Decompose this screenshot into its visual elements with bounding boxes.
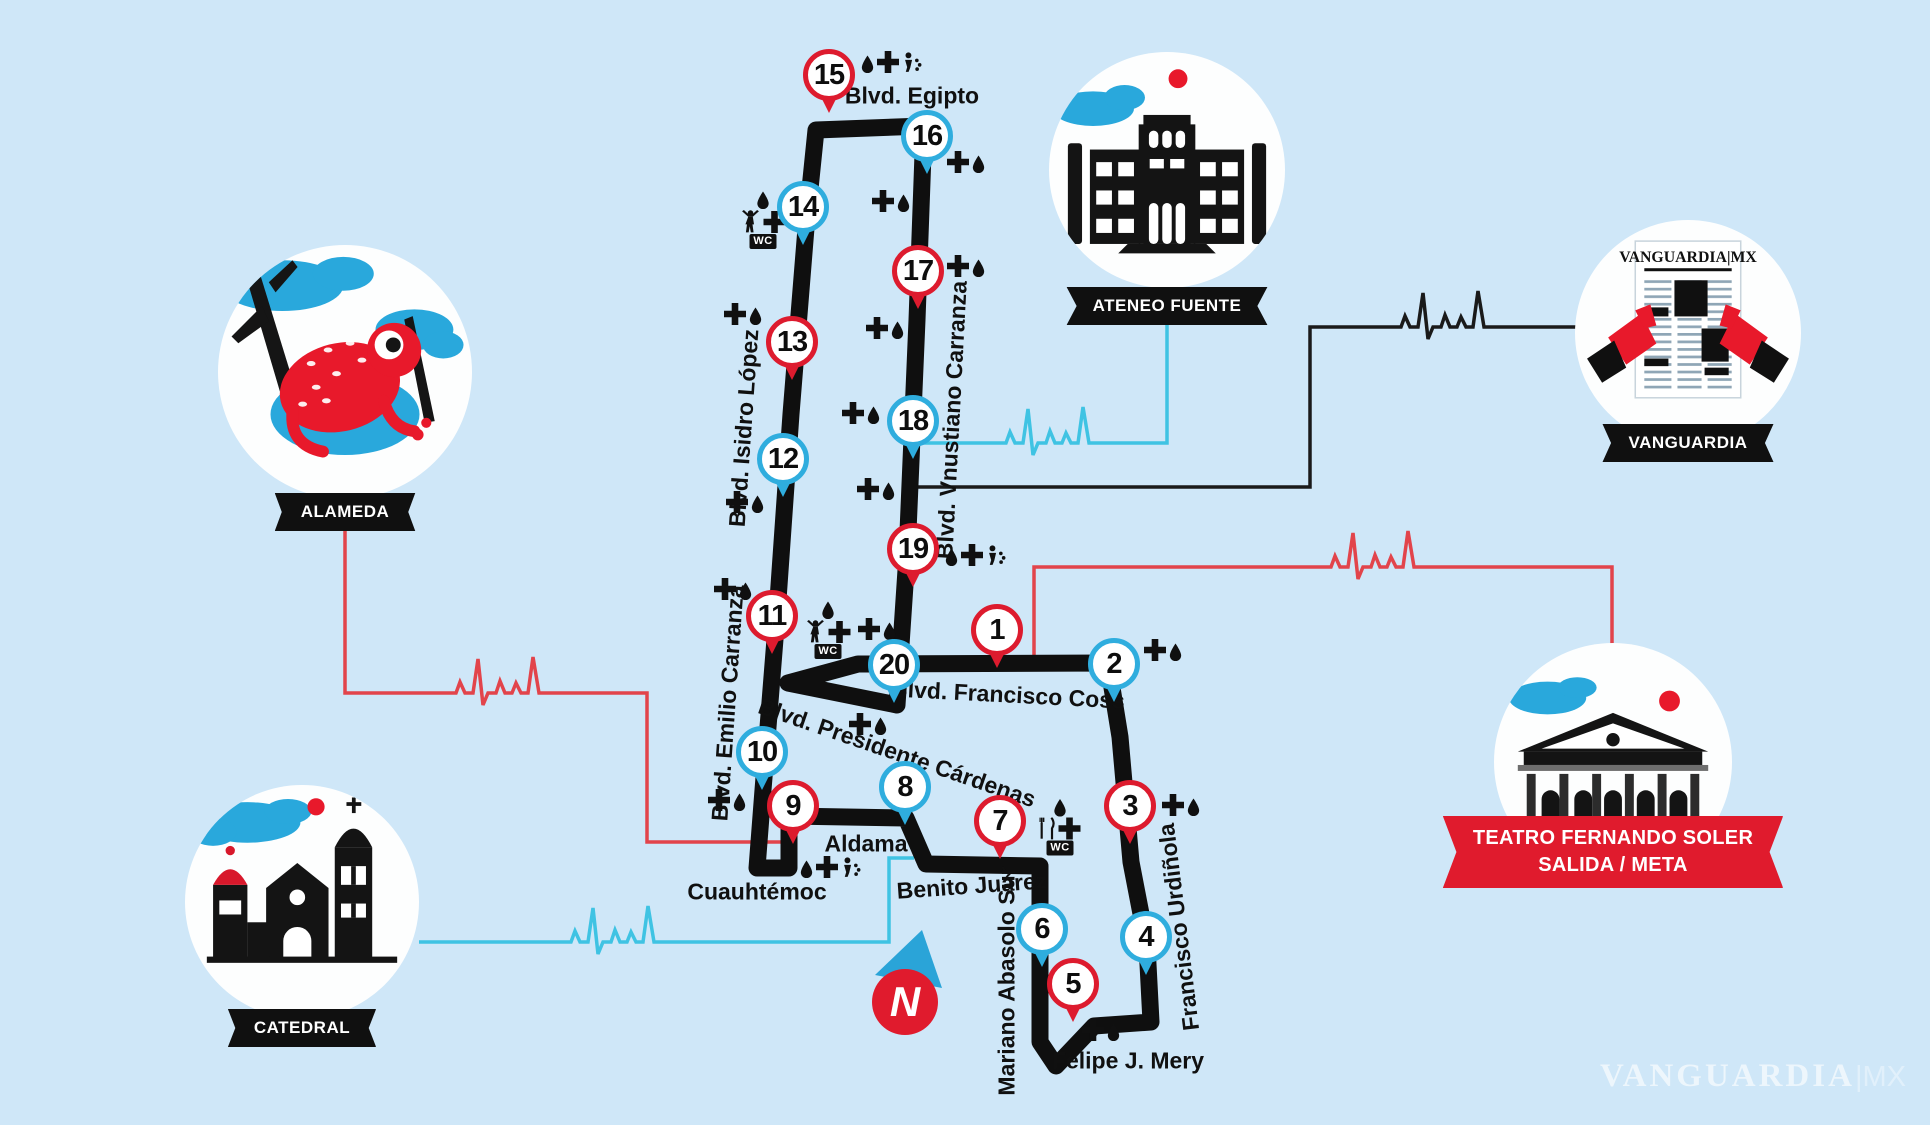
amenity-row: [872, 190, 910, 212]
km-number: 10: [747, 736, 777, 769]
water-icon: [945, 548, 958, 566]
watermark: VANGUARDIA|MX: [1600, 1058, 1906, 1095]
vanguardia-banner: VANGUARDIA: [1603, 424, 1774, 462]
watermark-brand: VANGUARDIA: [1600, 1058, 1855, 1094]
pin-circle: 3: [1104, 780, 1156, 832]
amenity-group: [857, 478, 895, 500]
pin-tail: [892, 799, 918, 838]
shower-icon: [902, 52, 923, 73]
km-number: 16: [912, 120, 942, 153]
medical-cross-icon: [1144, 639, 1166, 661]
pin-circle: 20: [868, 639, 920, 691]
amenity-group: [858, 618, 896, 640]
pin-circle: 4: [1120, 911, 1172, 963]
amenity-group: WC: [741, 191, 786, 249]
medical-cross-icon: [724, 303, 746, 325]
km-number: 2: [1106, 648, 1121, 681]
pin-tail: [881, 677, 907, 716]
medical-cross-icon: [866, 317, 888, 339]
amenity-row: WC: [1046, 841, 1073, 856]
km-marker-3: 3: [1104, 780, 1156, 832]
water-icon: [1187, 798, 1200, 816]
amenity-group: WC: [806, 601, 851, 659]
water-icon: [751, 495, 764, 513]
pin-tail: [790, 219, 816, 258]
amenity-row: [1144, 639, 1182, 661]
pin-circle: 17: [892, 245, 944, 297]
km-marker-9: 9: [767, 780, 819, 832]
pin-circle: 19: [887, 523, 939, 575]
water-icon: [800, 860, 813, 878]
street-label-cuauht-moc: Cuauhtémoc: [687, 879, 826, 906]
pin-tail: [987, 833, 1013, 872]
catedral-connector-line: [419, 858, 914, 954]
medical-cross-icon: [829, 621, 851, 643]
street-label-blvd-emilio-carranza: Blvd. Emilio Carranza: [706, 584, 749, 822]
water-icon: [733, 793, 746, 811]
medical-cross-icon: [857, 478, 879, 500]
street-label-blvd-egipto: Blvd. Egipto: [845, 83, 979, 110]
pin-tail: [770, 471, 796, 510]
street-label-blvd-presidente-c-rdenas: Blvd. Presidente Cárdenas: [755, 693, 1039, 813]
water-icon: [891, 321, 904, 339]
medical-cross-icon: [1162, 794, 1184, 816]
amenity-row: [800, 856, 862, 878]
newspaper-masthead: VANGUARDIA|MX: [1619, 249, 1757, 266]
vanguardia-illustration: VANGUARDIA|MX: [1575, 220, 1801, 446]
food-icon: [1040, 818, 1056, 840]
km-marker-8: 8: [879, 761, 931, 813]
amenity-group: [872, 190, 910, 212]
km-marker-16: 16: [901, 110, 953, 162]
km-number: 1: [989, 614, 1004, 647]
amenity-row: [806, 620, 851, 643]
water-icon: [883, 622, 896, 640]
amenity-group: [945, 544, 1007, 566]
pin-tail: [1029, 941, 1055, 980]
pin-circle: 11: [746, 590, 798, 642]
catedral-art: [185, 785, 419, 1019]
teatro-banner: TEATRO FERNANDO SOLER SALIDA / META: [1443, 816, 1783, 888]
runner-icon: [806, 620, 826, 643]
amenity-row: [757, 191, 770, 209]
north-compass: N: [845, 915, 965, 1040]
water-icon: [1054, 799, 1067, 817]
medical-cross-icon: [947, 255, 969, 277]
medical-cross-icon: [872, 190, 894, 212]
km-marker-19: 19: [887, 523, 939, 575]
amenity-row: [822, 601, 835, 619]
amenity-group: [849, 713, 887, 735]
pin-circle: 14: [777, 181, 829, 233]
km-number: 17: [903, 255, 933, 288]
street-label-aldama: Aldama: [824, 831, 907, 858]
amenity-row: [861, 51, 923, 73]
medical-cross-icon: [842, 402, 864, 424]
amenity-group: [1144, 639, 1182, 661]
pin-circle: 12: [757, 433, 809, 485]
water-icon: [867, 406, 880, 424]
shower-icon: [986, 545, 1007, 566]
medical-cross-icon: [849, 713, 871, 735]
amenity-group: [947, 255, 985, 277]
amenity-row: [724, 303, 762, 325]
pin-circle: 5: [1047, 958, 1099, 1010]
amenity-row: [726, 491, 764, 513]
shower-icon: [841, 857, 862, 878]
water-icon: [897, 194, 910, 212]
amenity-row: [858, 618, 896, 640]
amenity-group: [708, 789, 746, 811]
catedral-banner: CATEDRAL: [228, 1009, 376, 1047]
km-number: 18: [898, 405, 928, 438]
vanguardia-newspaper-art: VANGUARDIA|MX: [1575, 220, 1801, 446]
street-label-francisco-urdi-ola: Francisco Urdiñola: [1153, 822, 1205, 1032]
street-label-blvd-vnustiano-carranza: Blvd. Vnustiano Carranza: [931, 280, 973, 560]
catedral-illustration: [185, 785, 419, 1019]
medical-cross-icon: [764, 211, 786, 233]
amenity-row: [1040, 818, 1081, 840]
pin-tail: [1101, 676, 1127, 715]
pin-circle: 1: [971, 604, 1023, 656]
km-marker-17: 17: [892, 245, 944, 297]
amenity-row: [1082, 1019, 1120, 1041]
water-icon: [757, 191, 770, 209]
street-label-mariano-abasolo-sur: Mariano Abasolo Sur: [994, 866, 1021, 1095]
amenity-row: [1162, 794, 1200, 816]
pin-tail: [1060, 996, 1086, 1035]
water-icon: [882, 482, 895, 500]
water-icon: [822, 601, 835, 619]
compass-north-label: N: [890, 978, 922, 1025]
amenity-row: [842, 402, 880, 424]
km-marker-15: 15: [803, 49, 855, 101]
medical-cross-icon: [1082, 1019, 1104, 1041]
pin-tail: [984, 642, 1010, 681]
amenity-group: [726, 491, 764, 513]
km-number: 13: [777, 326, 807, 359]
amenity-group: [947, 151, 985, 173]
pin-tail: [1133, 949, 1159, 988]
amenity-group: [842, 402, 880, 424]
amenity-row: [866, 317, 904, 339]
amenity-group: [861, 51, 923, 73]
runner-icon: [741, 210, 761, 233]
water-icon: [1107, 1023, 1120, 1041]
amenity-row: [741, 210, 786, 233]
medical-cross-icon: [961, 544, 983, 566]
km-marker-14: 14: [777, 181, 829, 233]
pin-circle: 18: [887, 395, 939, 447]
water-icon: [739, 582, 752, 600]
wc-icon: WC: [749, 234, 776, 249]
medical-cross-icon: [726, 491, 748, 513]
amenity-group: [714, 578, 752, 600]
pin-tail: [779, 354, 805, 393]
street-label-blvd-isidro-l-pez: Blvd. Isidro López: [724, 328, 765, 527]
pin-tail: [1117, 818, 1143, 857]
medical-cross-icon: [708, 789, 730, 811]
medical-cross-icon: [816, 856, 838, 878]
km-number: 4: [1138, 921, 1153, 954]
saltillo-route-map: WCWCWC Blvd. EgiptoBlvd. Isidro LópezBlv…: [0, 0, 1930, 1125]
medical-cross-icon: [1059, 818, 1081, 840]
amenity-row: [947, 255, 985, 277]
pin-circle: 16: [901, 110, 953, 162]
street-label-benito-ju-rez: Benito Juárez: [896, 867, 1048, 904]
km-number: 7: [992, 805, 1007, 838]
km-marker-1: 1: [971, 604, 1023, 656]
amenity-group: WC: [1040, 799, 1081, 856]
water-icon: [861, 55, 874, 73]
km-marker-2: 2: [1088, 638, 1140, 690]
medical-cross-icon: [858, 618, 880, 640]
amenity-row: [708, 789, 746, 811]
pin-circle: 9: [767, 780, 819, 832]
alameda-banner: ALAMEDA: [275, 493, 416, 531]
amenity-row: [947, 151, 985, 173]
ateneo-illustration: [1049, 52, 1285, 288]
watermark-suffix: |MX: [1855, 1061, 1906, 1093]
km-number: 11: [758, 600, 787, 633]
teatro-banner-line2: SALIDA / META: [1473, 852, 1753, 879]
km-number: 15: [814, 59, 844, 92]
km-marker-20: 20: [868, 639, 920, 691]
pin-tail: [900, 433, 926, 472]
alameda-frog-art: [218, 245, 472, 499]
km-number: 6: [1034, 913, 1049, 946]
amenity-group: [724, 303, 762, 325]
pin-tail: [900, 561, 926, 600]
pin-circle: 8: [879, 761, 931, 813]
water-icon: [972, 155, 985, 173]
pin-circle: 13: [766, 316, 818, 368]
pin-circle: 6: [1016, 903, 1068, 955]
pin-tail: [905, 283, 931, 322]
amenity-row: WC: [814, 644, 841, 659]
wc-icon: WC: [814, 644, 841, 659]
km-number: 20: [879, 649, 909, 682]
km-marker-4: 4: [1120, 911, 1172, 963]
amenity-group: [800, 856, 862, 878]
ateneo-art: [1049, 52, 1285, 288]
amenity-group: [866, 317, 904, 339]
ateneo-banner: ATENEO FUENTE: [1067, 287, 1268, 325]
medical-cross-icon: [877, 51, 899, 73]
water-icon: [749, 307, 762, 325]
km-marker-6: 6: [1016, 903, 1068, 955]
amenity-row: [849, 713, 887, 735]
amenity-group: [1082, 1019, 1120, 1041]
km-number: 12: [768, 443, 798, 476]
km-number: 8: [897, 771, 912, 804]
pin-tail: [749, 764, 775, 803]
km-marker-5: 5: [1047, 958, 1099, 1010]
km-number: 5: [1065, 968, 1080, 1001]
amenity-row: [857, 478, 895, 500]
pin-circle: 2: [1088, 638, 1140, 690]
ateneo-connector-line: [918, 320, 1167, 455]
pin-circle: 15: [803, 49, 855, 101]
amenity-row: [945, 544, 1007, 566]
amenity-row: [1054, 799, 1067, 817]
amenity-group: [1162, 794, 1200, 816]
wc-icon: WC: [1046, 841, 1073, 856]
km-marker-18: 18: [887, 395, 939, 447]
teatro-banner-line1: TEATRO FERNANDO SOLER: [1473, 825, 1753, 852]
water-icon: [972, 259, 985, 277]
pin-tail: [759, 628, 785, 667]
water-icon: [874, 717, 887, 735]
km-marker-7: 7: [974, 795, 1026, 847]
km-number: 9: [785, 790, 800, 823]
pin-tail: [780, 818, 806, 857]
pin-circle: 7: [974, 795, 1026, 847]
medical-cross-icon: [947, 151, 969, 173]
pin-circle: 10: [736, 726, 788, 778]
alameda-connector-line: [345, 528, 783, 842]
street-label-felipe-j-mery: Felipe J. Mery: [1052, 1048, 1204, 1075]
km-marker-11: 11: [746, 590, 798, 642]
km-number: 3: [1122, 790, 1137, 823]
pin-tail: [914, 148, 940, 187]
teatro-connector-line: [1034, 531, 1612, 660]
km-marker-10: 10: [736, 726, 788, 778]
km-number: 19: [898, 533, 928, 566]
pin-tail: [816, 87, 842, 126]
water-icon: [1169, 643, 1182, 661]
alameda-illustration: [218, 245, 472, 499]
amenity-row: [714, 578, 752, 600]
km-marker-13: 13: [766, 316, 818, 368]
street-label-blvd-francisco-coss: Blvd. Francisco Coss: [890, 675, 1125, 714]
km-marker-12: 12: [757, 433, 809, 485]
amenity-row: WC: [749, 234, 776, 249]
km-number: 14: [788, 191, 818, 224]
medical-cross-icon: [714, 578, 736, 600]
